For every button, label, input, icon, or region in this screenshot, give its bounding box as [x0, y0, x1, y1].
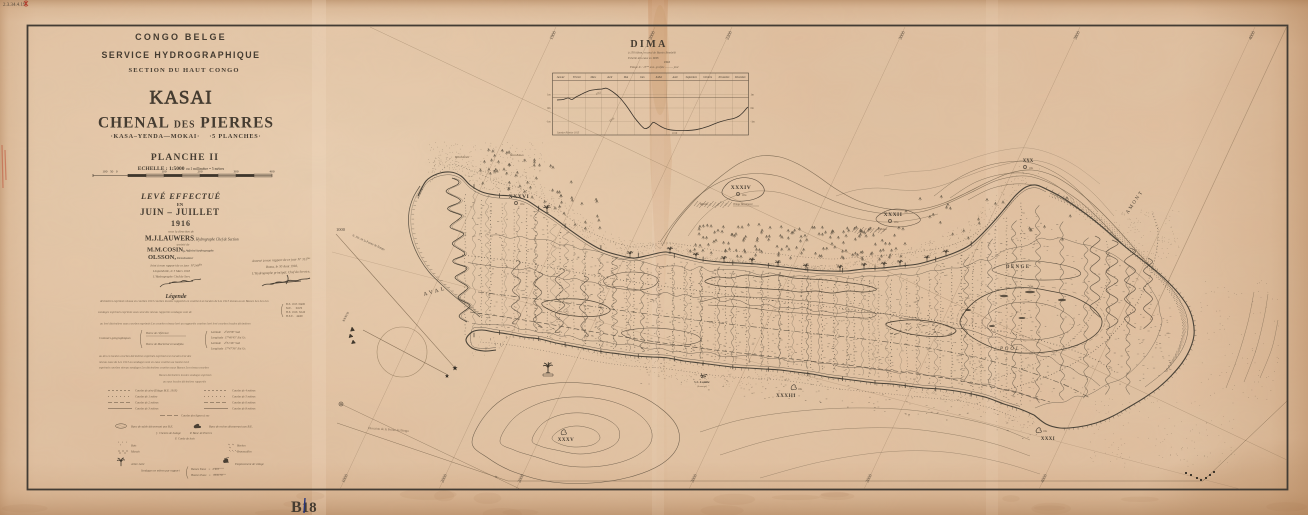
svg-text:Juillet: Juillet — [655, 76, 662, 79]
svg-text:décimètres exprimés niveau en: décimètres exprimés niveau en courbes 19… — [100, 299, 270, 303]
svg-text:XXXV: XXXV — [558, 438, 574, 443]
svg-text:Emplacement de village: Emplacement de village — [234, 462, 264, 466]
svg-text:SECTION DU HAUT CONGO: SECTION DU HAUT CONGO — [128, 67, 239, 74]
svg-text:Borne de référence: Borne de référence — [146, 331, 170, 335]
svg-text:Avril: Avril — [606, 76, 612, 79]
svg-text:Marais: Marais — [130, 450, 141, 454]
svg-text:Banc de sable découvrant aux B: Banc de sable découvrant aux B.E. — [131, 424, 173, 428]
svg-text:H.E. 1916 3m10: H.E. 1916 3m10 — [286, 311, 306, 314]
svg-text:Longitude 17°47′36″ Est Gr.: Longitude 17°47′36″ Est Gr. — [210, 347, 246, 351]
svg-text:Obs: Obs — [1043, 430, 1047, 433]
svg-text:niveau eaux du Les 1913 au son: niveau eaux du Les 1913 au sondages sont… — [99, 360, 190, 364]
svg-text:Borne de Maréchal à Gandjika: Borne de Maréchal à Gandjika — [146, 342, 184, 346]
svg-text:-1m: -1m — [751, 121, 755, 124]
svg-text:Latitude 4°29′58″ Sud: Latitude 4°29′58″ Sud — [210, 330, 240, 334]
svg-text:Herbes: Herbes — [236, 444, 246, 448]
svg-text:XXXIII: XXXIII — [776, 394, 796, 399]
svg-text:Octobre: Octobre — [703, 76, 713, 79]
svg-text:XXX: XXX — [1023, 159, 1034, 164]
svg-text:H.E.E. 4m00: H.E.E. 4m00 — [286, 315, 303, 318]
svg-text:OLSSON, Dessinateur: OLSSON, Dessinateur — [148, 254, 194, 261]
svg-text:·KASA–YENDA—MOKAI· ·5 PLANC: ·KASA–YENDA—MOKAI· ·5 PLANCHES· — [111, 133, 262, 140]
svg-text:DIMA: DIMA — [630, 39, 667, 50]
svg-text:Bassi-Bakwa: Bassi-Bakwa — [510, 154, 524, 157]
svg-text:1916: 1916 — [672, 132, 678, 135]
svg-text:JUIN – JUILLET: JUIN – JUILLET — [140, 207, 220, 217]
svg-text:Septembre: Septembre — [686, 76, 698, 79]
svg-text:Août: Août — [671, 76, 677, 79]
svg-text:sondages exprimés exprimés eau: sondages exprimés exprimés eaux sont des… — [98, 310, 192, 314]
svg-text:Basses décimètres locales sond: Basses décimètres locales sondages expri… — [159, 373, 212, 377]
svg-text:XXXII: XXXII — [884, 212, 903, 218]
svg-text:°: ° — [120, 445, 121, 448]
svg-text:Latitude 4°31′46″ Sud: Latitude 4°31′46″ Sud — [210, 341, 240, 345]
svg-text:DENGE: DENGE — [1006, 265, 1031, 270]
svg-text:°: ° — [126, 442, 127, 445]
svg-text:2.3.34.4.19: 2.3.34.4.19 — [3, 3, 26, 8]
svg-text:PLANCHE II: PLANCHE II — [151, 153, 219, 163]
svg-text:Etiage le : 15me ann. grafike: Etiage le : 15me ann. grafike ——— jour — [629, 65, 680, 70]
svg-text:(Immergé): (Immergé) — [697, 385, 707, 388]
svg-text:200: 200 — [197, 170, 202, 174]
svg-text:Sondages en mètres par rapport: Sondages en mètres par rapport — [141, 469, 180, 473]
svg-text:M.E. 0m70: M.E. 0m70 — [286, 307, 303, 310]
svg-text:S.S. Lombe: S.S. Lombe — [694, 380, 710, 384]
svg-text:ƒ. Chemin de halage: ƒ. Chemin de halage P. Banc de Pierres — [156, 431, 213, 435]
svg-text:Janvier-Février 1915: Janvier-Février 1915 — [557, 132, 580, 135]
svg-text:1916: 1916 — [664, 60, 671, 64]
svg-text:°: ° — [118, 442, 119, 445]
svg-text:M.M.COSIN, Adjoint hydrographe: M.M.COSIN, Adjoint hydrographe — [147, 247, 214, 254]
svg-text:Lunga: Lunga — [879, 228, 887, 231]
svg-text:à 150 kilom. en aval de Bassin: à 150 kilom. en aval de Bassin Bombélé — [628, 51, 677, 55]
svg-text:Contours géographiques: Contours géographiques — [99, 336, 131, 340]
svg-text:Février: Février — [572, 76, 582, 79]
svg-text:Bassi-ndende: Bassi-ndende — [455, 156, 470, 159]
svg-text:exprimés courbes niveau sondag: exprimés courbes niveau sondages Les déc… — [99, 366, 210, 370]
svg-text:°: ° — [122, 442, 123, 445]
svg-text:sous la direction de: sous la direction de — [168, 230, 194, 234]
svg-text:Banc de roches découvrant aux: Banc de roches découvrant aux B.E. — [209, 424, 253, 428]
svg-text:1m: 1m — [547, 94, 550, 97]
svg-text:0m: 0m — [547, 107, 550, 110]
svg-text:Broussailles: Broussailles — [237, 450, 253, 454]
svg-text:Courbe de 8 mètres: Courbe de 8 mètres — [232, 407, 256, 411]
svg-text:B.E. 1913 0m00: B.E. 1913 0m00 — [286, 303, 306, 306]
svg-text:Juin: Juin — [640, 76, 645, 79]
svg-text:Obs: Obs — [520, 203, 525, 206]
svg-text:XXXIV: XXXIV — [731, 185, 752, 191]
svg-text:Janvier: Janvier — [557, 76, 566, 79]
svg-text:100 50 0: 100 50 0 — [102, 170, 118, 174]
svg-text:Basses Eaux = 0 m 0: Basses Eaux = 0 m 0 — [191, 467, 219, 471]
svg-text:au des en locales courbes déci: au des en locales courbes décimètres exp… — [99, 354, 192, 358]
svg-text:100: 100 — [161, 170, 166, 174]
svg-text:-1m: -1m — [546, 121, 550, 124]
svg-text:Hautes Eaux = ±0 m 70: Hautes Eaux = ±0 m 70 — [190, 473, 223, 477]
svg-text:Obs: Obs — [742, 194, 747, 197]
svg-text:au eaux locales décimètres rap: au eaux locales décimètres rapportés — [163, 380, 207, 384]
svg-text:Longitude 17°46′45″ Est Gr.: Longitude 17°46′45″ Est Gr. — [210, 336, 246, 340]
svg-text:Décembre: Décembre — [734, 76, 747, 79]
svg-text:Courbe de 5 mètres: Courbe de 5 mètres — [232, 395, 256, 399]
svg-text:LEVÉ EFFECTUÉ: LEVÉ EFFECTUÉ — [140, 191, 221, 201]
svg-text:Bassila: Bassila — [700, 203, 708, 206]
svg-text:Echelle des eaux en 1915: Echelle des eaux en 1915 — [627, 56, 659, 60]
svg-text:SERVICE HYDROGRAPHIQUE: SERVICE HYDROGRAPHIQUE — [102, 50, 261, 60]
svg-text:300: 300 — [233, 170, 238, 174]
svg-text:XXXI: XXXI — [1041, 437, 1055, 442]
svg-text:au levé décimètres eaux courbe: au levé décimètres eaux courbes exprimés… — [100, 322, 251, 326]
svg-text:Mars: Mars — [589, 76, 596, 79]
svg-text:POOL: POOL — [999, 347, 1021, 352]
svg-text:Obs: Obs — [1029, 167, 1033, 170]
svg-text:F. Corde de bois: F. Corde de bois — [174, 437, 195, 441]
svg-text:1000: 1000 — [336, 227, 346, 232]
svg-text:Courbe de 2 mètres: Courbe de 2 mètres — [135, 401, 159, 405]
svg-text:CONGO BELGE: CONGO BELGE — [135, 32, 227, 42]
svg-text:Courbe de 3 mètres: Courbe de 3 mètres — [135, 407, 159, 411]
svg-text:Courbe de 4 mètres: Courbe de 4 mètres — [232, 389, 256, 393]
svg-text:L’Hydrographe Chef de Serv.: L’Hydrographe Chef de Serv. — [152, 275, 191, 279]
svg-text:Courbe de 1 mètre: Courbe de 1 mètre — [135, 395, 158, 399]
svg-text:400: 400 — [269, 170, 274, 174]
svg-text:Courbe de 6 mètres: Courbe de 6 mètres — [232, 401, 256, 405]
svg-text:Arbre isolé: Arbre isolé — [130, 462, 145, 466]
svg-text:0m: 0m — [751, 107, 754, 110]
svg-text:1916: 1916 — [171, 219, 191, 228]
svg-text:Village Bassimassi: Village Bassimassi — [733, 203, 753, 206]
svg-text:Bois: Bois — [131, 444, 137, 448]
svg-text:1m: 1m — [751, 94, 754, 97]
svg-text:Mai: Mai — [623, 76, 629, 79]
svg-text:Courbe de zéro (Etiage M.E. 19: Courbe de zéro (Etiage M.E. 1913) — [135, 389, 177, 393]
svg-text:Obs: Obs — [798, 388, 802, 391]
svg-text:Obs: Obs — [894, 221, 899, 224]
svg-text:Novembre: Novembre — [718, 76, 731, 79]
svg-text:KASAI: KASAI — [149, 88, 212, 109]
svg-text:Joint à mon rapport de ce jour: Joint à mon rapport de ce jour N°248bis — [150, 263, 202, 268]
svg-text:Courbe des lignes à sec: Courbe des lignes à sec — [181, 414, 210, 418]
